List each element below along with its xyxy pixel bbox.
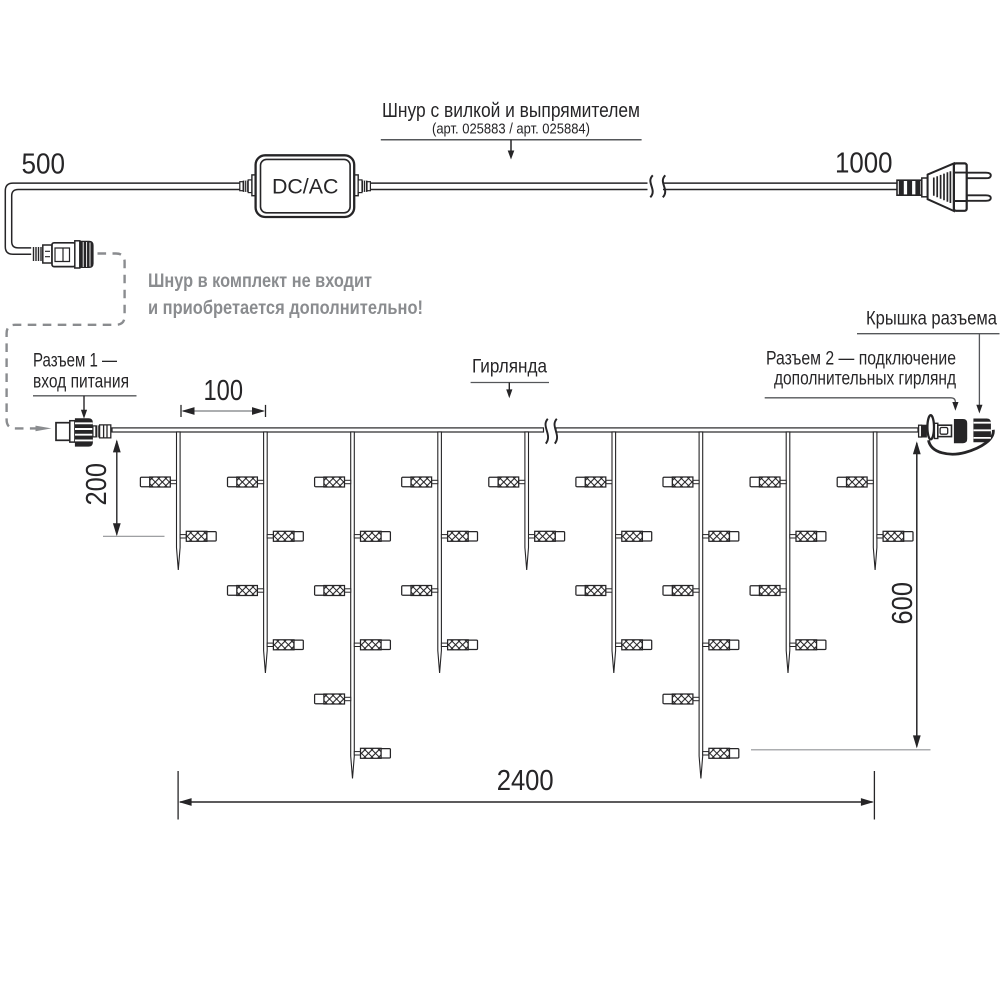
svg-text:Разъем 1 —: Разъем 1 — [33, 351, 117, 372]
svg-text:1000: 1000 [835, 147, 893, 179]
svg-text:Шнур с вилкой и выпрямителем: Шнур с вилкой и выпрямителем [382, 100, 640, 122]
svg-text:(арт. 025883 / арт. 025884): (арт. 025883 / арт. 025884) [432, 122, 590, 138]
svg-text:500: 500 [22, 149, 66, 181]
svg-text:200: 200 [81, 463, 113, 506]
svg-text:100: 100 [204, 375, 244, 407]
svg-text:2400: 2400 [497, 765, 554, 797]
svg-text:Гирлянда: Гирлянда [472, 357, 547, 378]
svg-text:600: 600 [887, 582, 919, 625]
svg-text:и приобретается дополнительно!: и приобретается дополнительно! [148, 297, 423, 319]
svg-text:Шнур в комплект не входит: Шнур в комплект не входит [148, 270, 372, 292]
svg-text:дополнительных гирлянд: дополнительных гирлянд [774, 368, 956, 389]
svg-text:вход питания: вход питания [33, 372, 129, 393]
svg-text:Разъем 2 — подключение: Разъем 2 — подключение [766, 349, 956, 370]
svg-text:DC/AC: DC/AC [272, 174, 339, 198]
svg-text:Крышка разъема: Крышка разъема [866, 309, 997, 330]
